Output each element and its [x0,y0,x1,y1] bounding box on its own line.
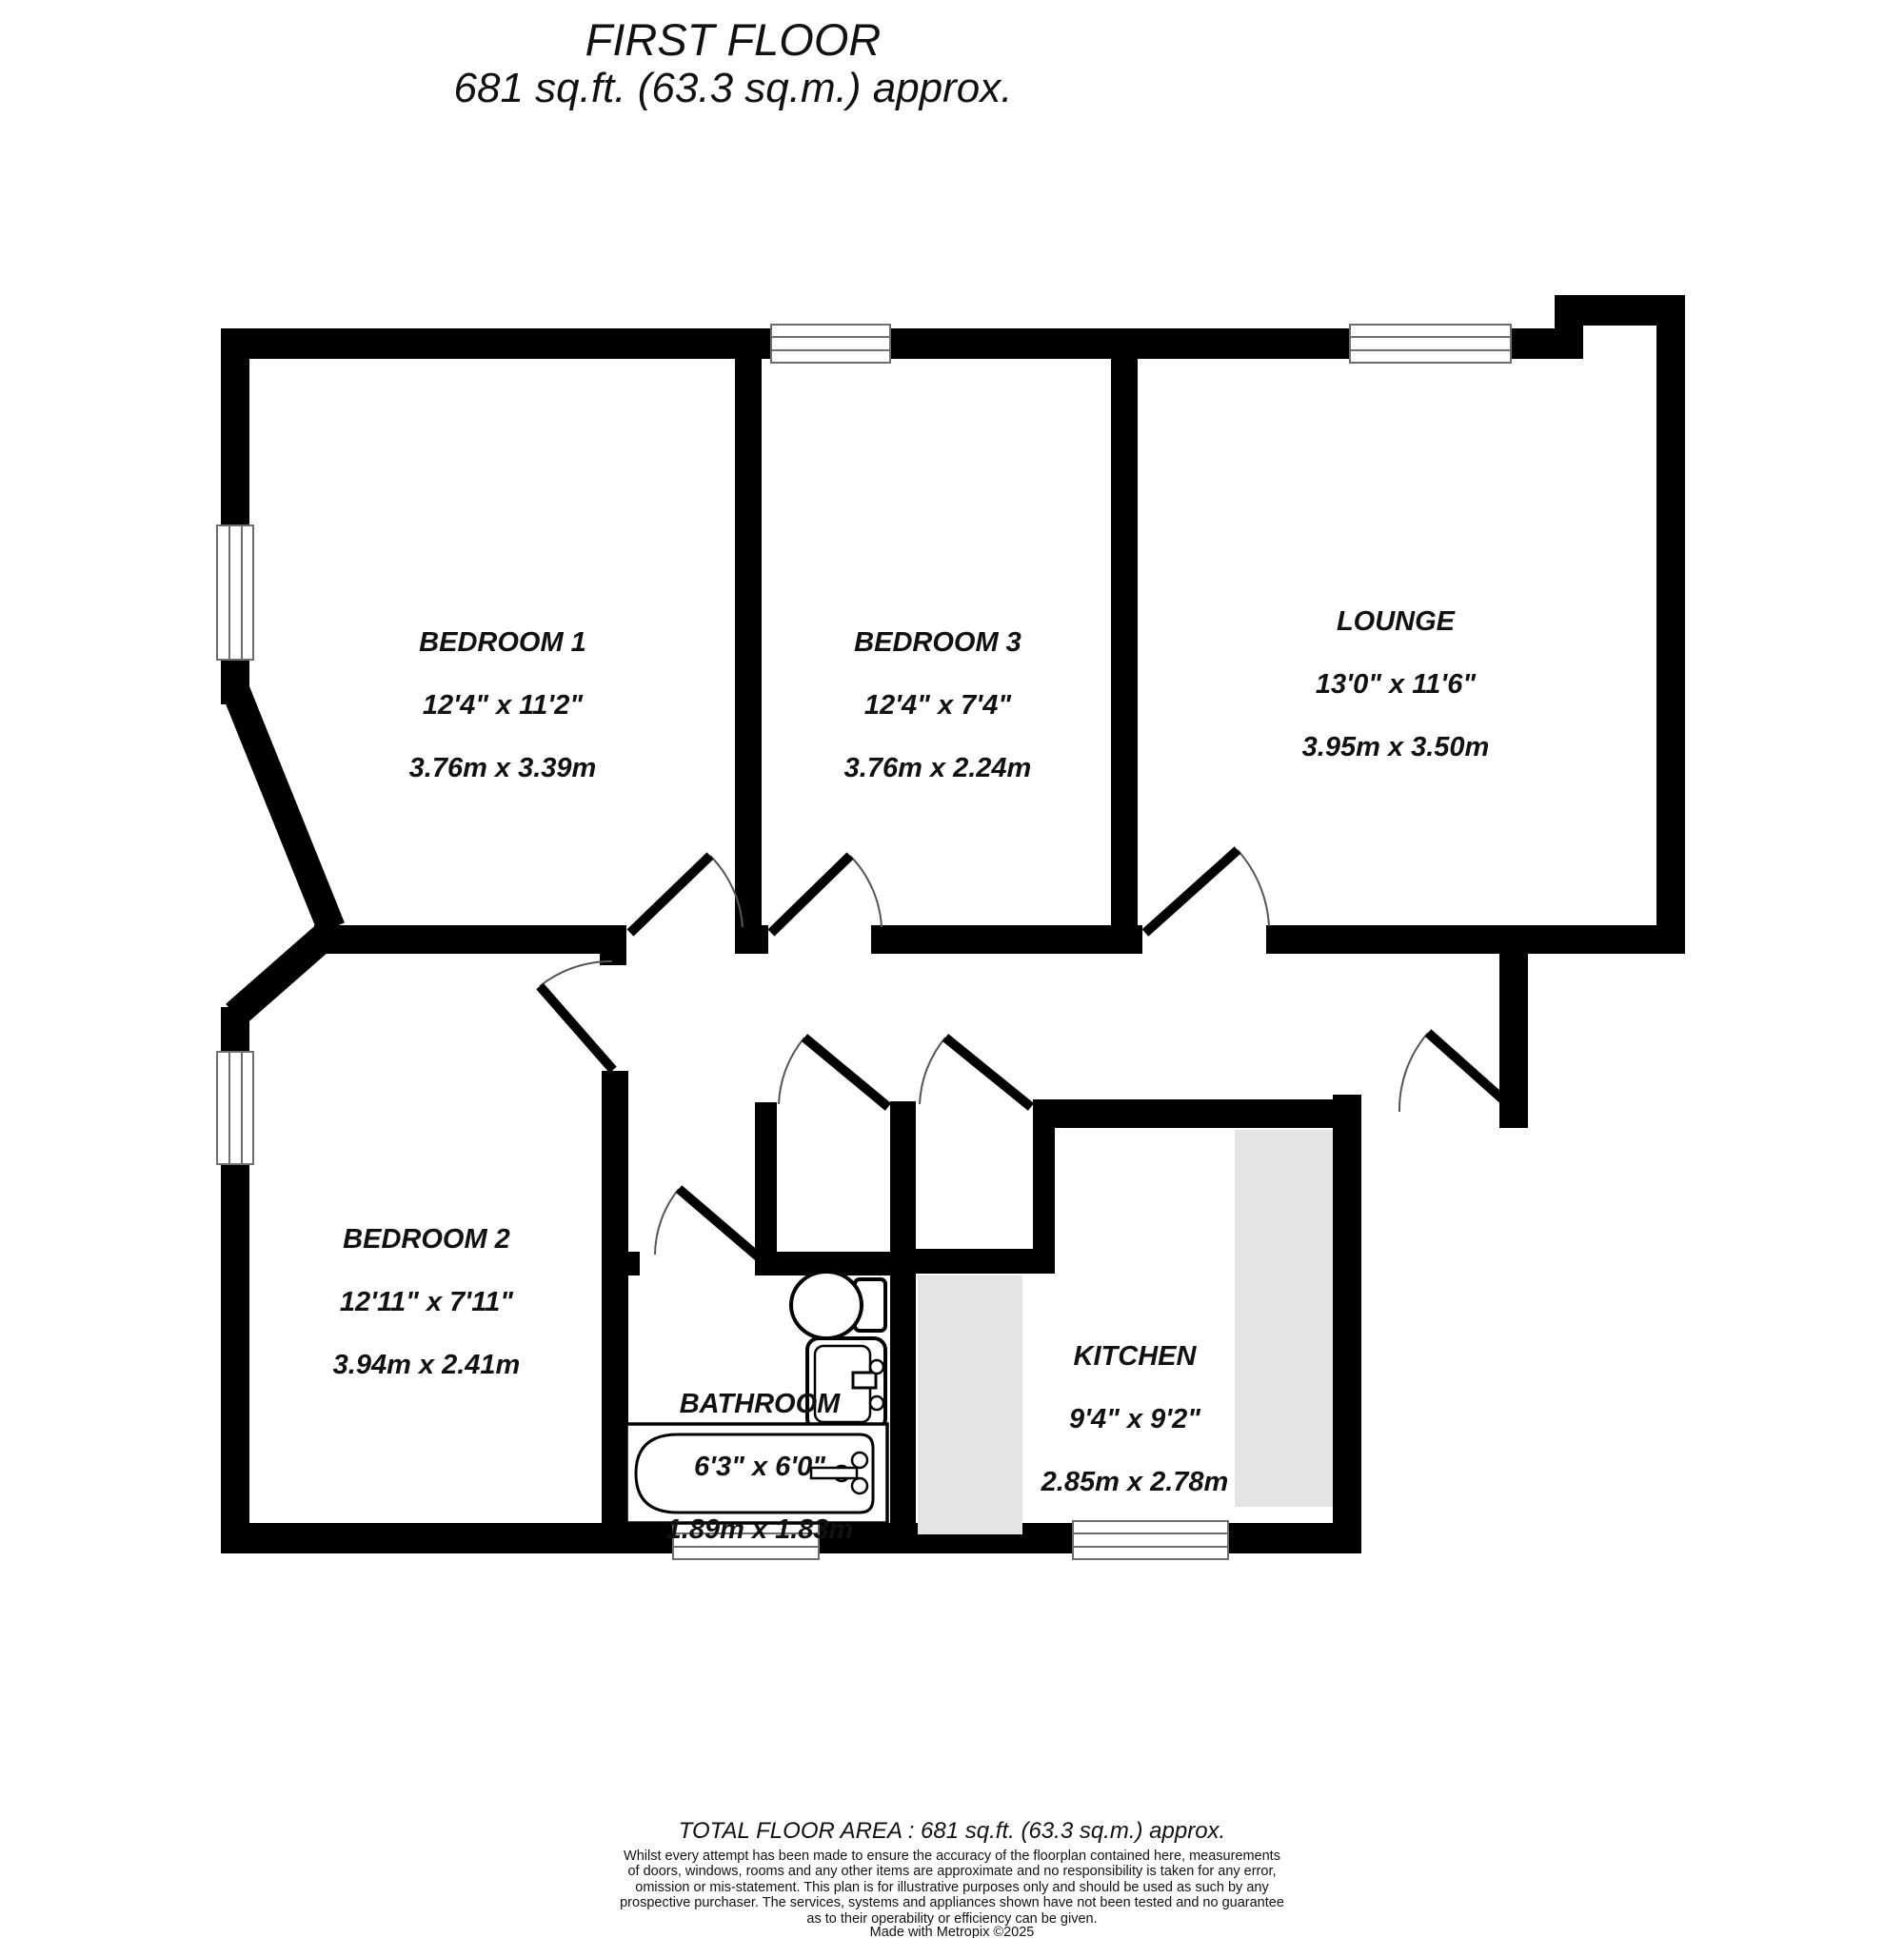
floorplan-page: FIRST FLOOR 681 sq.ft. (63.3 sq.m.) appr… [0,0,1904,1938]
room-size-imperial: 6'3" x 6'0" [666,1452,854,1483]
wall-step-connector [1555,295,1583,359]
wall-hall-top-2 [735,925,768,954]
door-lounge [1145,850,1269,933]
door-kitchen [1399,1033,1515,1112]
window-bedroom1-left [217,525,253,660]
room-label-lounge: LOUNGE 13'0" x 11'6" 3.95m x 3.50m [1302,575,1490,795]
wall-kitchen-right [1333,1095,1361,1553]
room-size-imperial: 12'4" x 11'2" [409,690,597,722]
bathtub-tap-knob-1 [852,1453,867,1468]
wall-bedroom2-door-stub [600,925,626,965]
kitchen-counter-left [918,1276,1022,1534]
room-label-kitchen: KITCHEN 9'4" x 9'2" 2.85m x 2.78m [1041,1310,1229,1530]
room-label-bathroom: BATHROOM 6'3" x 6'0" 1.89m x 1.83m [666,1357,854,1577]
wall-kitchen-top [1033,1099,1361,1128]
wall-bathroom-kitchen [890,1101,916,1553]
door-bedroom2 [540,961,613,1070]
bathtub-tap-knob-2 [852,1478,867,1493]
total-floor-area: TOTAL FLOOR AREA : 681 sq.ft. (63.3 sq.m… [679,1818,1225,1845]
wall-hall-top-1 [314,925,626,954]
wall-bedroom1-bedroom3 [735,357,762,928]
door-bedroom1 [630,856,743,933]
room-size-metric: 3.76m x 2.24m [844,753,1032,784]
room-name: LOUNGE [1302,606,1490,638]
room-size-metric: 3.76m x 3.39m [409,753,597,784]
room-size-imperial: 12'4" x 7'4" [844,690,1032,722]
room-size-imperial: 12'11" x 7'11" [333,1287,521,1318]
door-cupboard-right [920,1038,1031,1107]
window-bedroom2-left [217,1052,253,1164]
door-bathroom [655,1189,758,1256]
wall-left-d [221,1164,249,1553]
door-cupboard-left [779,1038,888,1107]
room-size-imperial: 9'4" x 9'2" [1041,1404,1229,1435]
room-name: BEDROOM 1 [409,627,597,659]
page-title: FIRST FLOOR [585,15,882,65]
room-label-bedroom3: BEDROOM 3 12'4" x 7'4" 3.76m x 2.24m [844,596,1032,816]
wall-bedroom2-right [602,1071,628,1553]
toilet [791,1272,885,1338]
wall-hall-top-3 [871,925,1142,954]
room-name: BATHROOM [666,1389,854,1420]
wall-bay-diagonal-upper [235,689,331,928]
room-size-metric: 3.94m x 2.41m [333,1350,521,1381]
door-bedroom3 [771,856,882,933]
wall-left-a [221,328,249,525]
wall-right-exterior [1656,295,1685,950]
wall-nook-bottom [890,1249,1055,1274]
wall-bedroom3-lounge [1111,357,1138,928]
room-size-imperial: 13'0" x 11'6" [1302,669,1490,701]
wall-cupboard-stub [755,1102,777,1276]
room-name: BEDROOM 3 [844,627,1032,659]
wall-bathroom-top-left [602,1252,640,1276]
room-size-metric: 2.85m x 2.78m [1041,1467,1229,1498]
doors [540,850,1515,1256]
window-bedroom3-top [771,325,890,363]
room-name: KITCHEN [1041,1341,1229,1373]
wall-hall-top-4 [1266,925,1685,954]
kitchen-counter-right [1235,1130,1333,1507]
wall-nook-right [1033,1128,1055,1252]
wall-top-mid [890,328,1350,359]
room-size-metric: 1.89m x 1.83m [666,1514,854,1546]
window-lounge-top [1350,325,1511,363]
room-label-bedroom2: BEDROOM 2 12'11" x 7'11" 3.94m x 2.41m [333,1193,521,1413]
room-label-bedroom1: BEDROOM 1 12'4" x 11'2" 3.76m x 3.39m [409,596,597,816]
disclaimer-text: Whilst every attempt has been made to en… [620,1849,1284,1927]
page-subtitle: 681 sq.ft. (63.3 sq.m.) approx. [454,65,1013,112]
wall-top-left [221,328,771,359]
room-name: BEDROOM 2 [333,1224,521,1256]
floorplan-drawing [0,0,1904,1938]
room-size-metric: 3.95m x 3.50m [1302,732,1490,763]
credit-text: Made with Metropix ©2025 [870,1925,1035,1938]
